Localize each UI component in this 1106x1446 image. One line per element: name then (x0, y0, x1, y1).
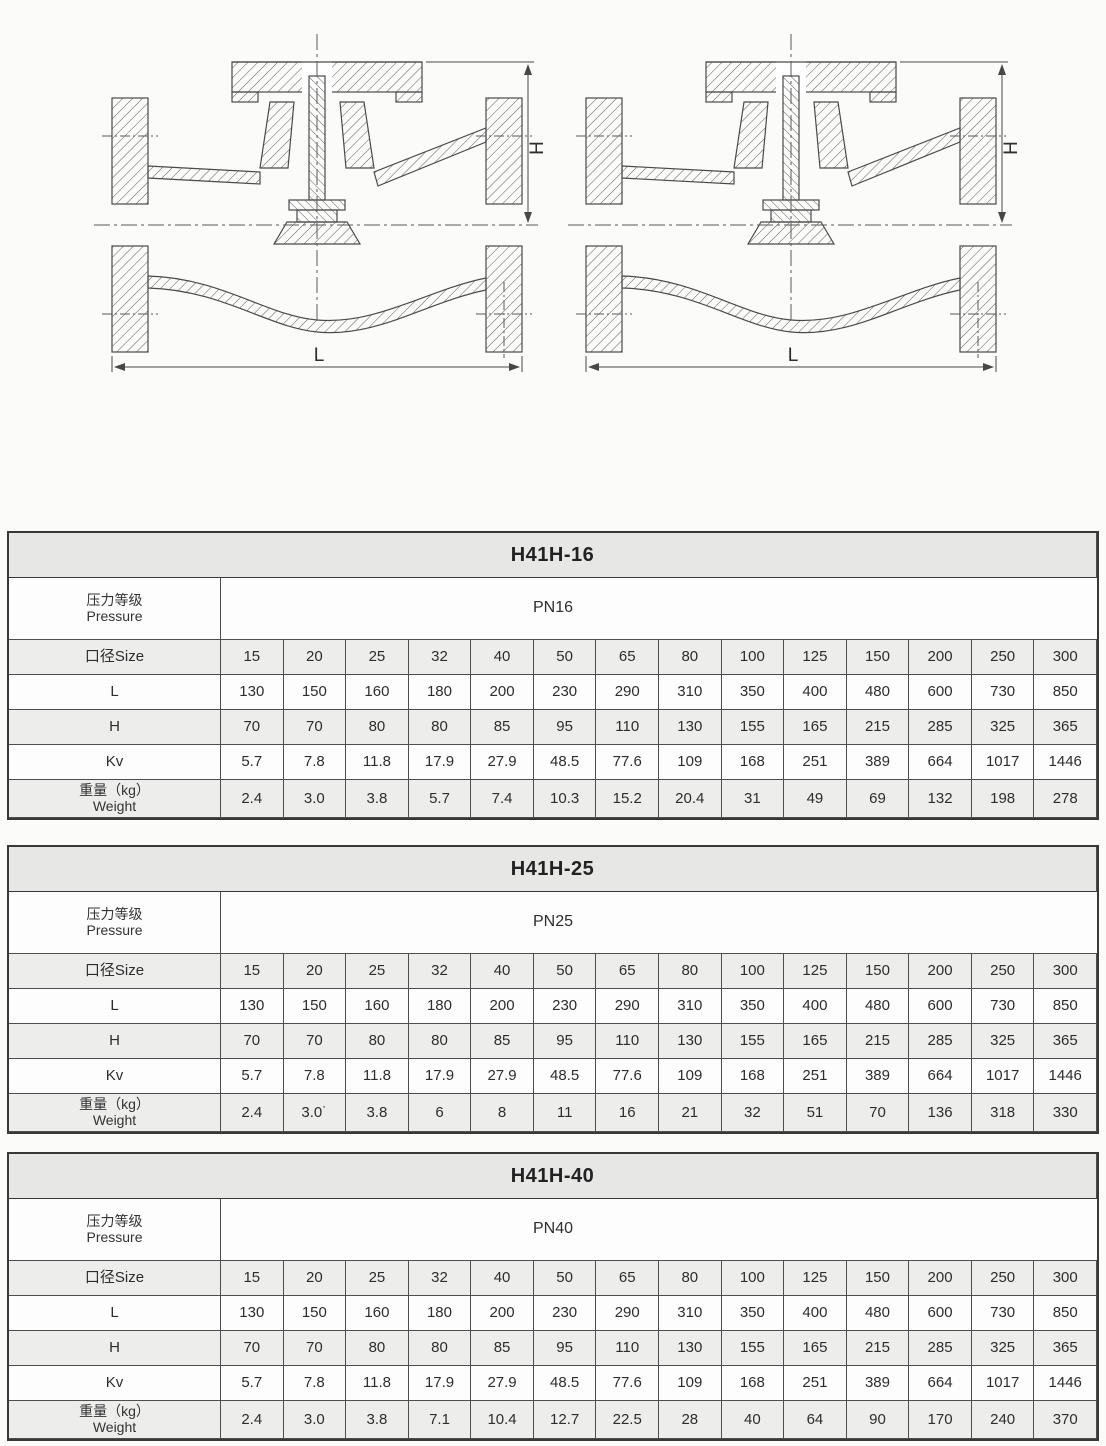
spec-cell-size: 300 (1034, 1261, 1097, 1296)
l-row-label: L (9, 989, 221, 1024)
spec-cell-kv: 251 (784, 745, 847, 780)
spec-cell-kv: 77.6 (596, 745, 659, 780)
spec-cell-l: 310 (659, 989, 722, 1024)
spec-cell-h: 325 (972, 1331, 1035, 1366)
spec-cell-size: 15 (221, 954, 284, 989)
spec-cell-l: 400 (784, 675, 847, 710)
spec-cell-kv: 5.7 (221, 745, 284, 780)
spec-cell-kv: 664 (909, 1366, 972, 1401)
spec-cell-kv: 48.5 (534, 1366, 597, 1401)
spec-cell-l: 160 (346, 675, 409, 710)
spec-cell-h: 325 (972, 710, 1035, 745)
spec-cell-size: 65 (596, 1261, 659, 1296)
spec-cell-l: 180 (409, 675, 472, 710)
spec-cell-l: 400 (784, 1296, 847, 1331)
spec-cell-size: 40 (471, 954, 534, 989)
spec-cell-kv: 17.9 (409, 1366, 472, 1401)
spec-cell-l: 730 (972, 675, 1035, 710)
l-row-label: L (9, 1296, 221, 1331)
weight-label-en: Weight (93, 799, 136, 814)
spec-cell-h: 215 (847, 1331, 910, 1366)
weight-label-en: Weight (93, 1113, 136, 1128)
spec-cell-kv: 109 (659, 1059, 722, 1094)
pressure-label-zh: 压力等级 (87, 907, 143, 922)
spec-cell-l: 850 (1034, 675, 1097, 710)
pressure-label-zh: 压力等级 (87, 593, 143, 608)
spec-cell-kv: 1446 (1034, 1366, 1097, 1401)
spec-cell-kv: 251 (784, 1059, 847, 1094)
spec-cell-l: 230 (534, 989, 597, 1024)
kv-row-label: Kv (9, 745, 221, 780)
spec-cell-l: 180 (409, 989, 472, 1024)
pressure-value: PN16 (221, 578, 1097, 640)
spec-cell-weight: 22.5 (596, 1401, 659, 1439)
spec-cell-weight: 49 (784, 780, 847, 818)
table-title: H41H-16 (9, 533, 1097, 578)
spec-cell-weight: 370 (1034, 1401, 1097, 1439)
spec-cell-size: 200 (909, 954, 972, 989)
spec-cell-kv: 48.5 (534, 745, 597, 780)
spec-cell-size: 50 (534, 640, 597, 675)
spec-cell-weight: 3.8 (346, 1094, 409, 1132)
spec-cell-h: 165 (784, 710, 847, 745)
spec-cell-size: 32 (409, 954, 472, 989)
spec-cell-weight: 31 (722, 780, 785, 818)
spec-cell-weight: 8 (471, 1094, 534, 1132)
spec-cell-h: 215 (847, 710, 910, 745)
h-row-label: H (9, 1331, 221, 1366)
pressure-label-zh: 压力等级 (87, 1214, 143, 1229)
spec-cell-h: 70 (221, 710, 284, 745)
spec-cell-h: 85 (471, 710, 534, 745)
spec-cell-kv: 11.8 (346, 1059, 409, 1094)
spec-cell-size: 25 (346, 1261, 409, 1296)
spec-cell-weight: 3.0 (284, 1401, 347, 1439)
spec-cell-weight: 3.0˙ (284, 1094, 347, 1132)
spec-cell-h: 70 (221, 1331, 284, 1366)
spec-cell-l: 850 (1034, 989, 1097, 1024)
pressure-value: PN40 (221, 1199, 1097, 1261)
spec-cell-weight: 5.7 (409, 780, 472, 818)
spec-cell-size: 250 (972, 954, 1035, 989)
spec-cell-size: 250 (972, 1261, 1035, 1296)
spec-cell-size: 15 (221, 640, 284, 675)
spec-cell-l: 290 (596, 1296, 659, 1331)
size-row-label: 口径Size (9, 640, 221, 675)
spec-cell-l: 350 (722, 1296, 785, 1331)
spec-cell-h: 165 (784, 1331, 847, 1366)
spec-cell-size: 15 (221, 1261, 284, 1296)
spec-cell-weight: 136 (909, 1094, 972, 1132)
spec-cell-l: 150 (284, 675, 347, 710)
spec-cell-weight: 132 (909, 780, 972, 818)
spec-cell-weight: 6 (409, 1094, 472, 1132)
spec-cell-h: 95 (534, 1331, 597, 1366)
spec-cell-weight: 51 (784, 1094, 847, 1132)
spec-cell-size: 200 (909, 1261, 972, 1296)
spec-cell-size: 40 (471, 640, 534, 675)
spec-cell-l: 130 (221, 1296, 284, 1331)
spec-cell-h: 110 (596, 1024, 659, 1059)
pressure-label-en: Pressure (86, 609, 142, 624)
spec-cell-weight: 3.8 (346, 1401, 409, 1439)
spec-cell-size: 150 (847, 1261, 910, 1296)
table-title: H41H-25 (9, 847, 1097, 892)
spec-cell-kv: 17.9 (409, 1059, 472, 1094)
spec-cell-h: 285 (909, 1024, 972, 1059)
spec-cell-size: 25 (346, 640, 409, 675)
pressure-value: PN25 (221, 892, 1097, 954)
spec-cell-l: 200 (471, 675, 534, 710)
spec-cell-h: 80 (409, 710, 472, 745)
spec-cell-h: 70 (221, 1024, 284, 1059)
spec-cell-size: 300 (1034, 640, 1097, 675)
spec-cell-size: 125 (784, 640, 847, 675)
spec-cell-l: 150 (284, 1296, 347, 1331)
spec-cell-l: 180 (409, 1296, 472, 1331)
spec-cell-l: 290 (596, 989, 659, 1024)
h-row-label: H (9, 1024, 221, 1059)
spec-cell-weight: 198 (972, 780, 1035, 818)
spec-cell-weight: 330 (1034, 1094, 1097, 1132)
spec-cell-kv: 389 (847, 1059, 910, 1094)
weight-label-zh: 重量（kg） (79, 783, 150, 798)
spec-cell-h: 155 (722, 710, 785, 745)
spec-cell-h: 365 (1034, 710, 1097, 745)
spec-cell-kv: 27.9 (471, 745, 534, 780)
weight-label-zh: 重量（kg） (79, 1404, 150, 1419)
spec-cell-size: 100 (722, 640, 785, 675)
spec-cell-l: 480 (847, 675, 910, 710)
spec-cell-h: 130 (659, 1331, 722, 1366)
spec-cell-l: 160 (346, 1296, 409, 1331)
spec-cell-h: 70 (284, 1024, 347, 1059)
spec-cell-size: 150 (847, 640, 910, 675)
spec-cell-l: 480 (847, 989, 910, 1024)
weight-row-label: 重量（kg） Weight (9, 1094, 221, 1132)
spec-cell-weight: 64 (784, 1401, 847, 1439)
spec-cell-h: 70 (284, 710, 347, 745)
spec-cell-weight: 70 (847, 1094, 910, 1132)
spec-cell-weight: 7.1 (409, 1401, 472, 1439)
spec-cell-kv: 5.7 (221, 1366, 284, 1401)
spec-cell-size: 20 (284, 1261, 347, 1296)
spec-cell-size: 125 (784, 1261, 847, 1296)
spec-cell-kv: 27.9 (471, 1366, 534, 1401)
spec-cell-h: 80 (346, 1331, 409, 1366)
weight-row-label: 重量（kg） Weight (9, 1401, 221, 1439)
spec-cell-h: 95 (534, 1024, 597, 1059)
spec-cell-size: 65 (596, 954, 659, 989)
h-row-label: H (9, 710, 221, 745)
valve-cross-section-drawing-right (556, 20, 1026, 380)
spec-cell-h: 110 (596, 710, 659, 745)
spec-cell-weight: 7.4 (471, 780, 534, 818)
size-row-label: 口径Size (9, 954, 221, 989)
spec-cell-weight: 2.4 (221, 1401, 284, 1439)
spec-cell-h: 215 (847, 1024, 910, 1059)
spec-cell-size: 300 (1034, 954, 1097, 989)
spec-cell-size: 32 (409, 1261, 472, 1296)
spec-cell-kv: 7.8 (284, 1366, 347, 1401)
spec-cell-kv: 168 (722, 1366, 785, 1401)
spec-cell-h: 165 (784, 1024, 847, 1059)
kv-row-label: Kv (9, 1059, 221, 1094)
spec-cell-kv: 109 (659, 745, 722, 780)
spec-cell-h: 70 (284, 1331, 347, 1366)
spec-cell-l: 310 (659, 675, 722, 710)
spec-cell-l: 310 (659, 1296, 722, 1331)
spec-cell-kv: 17.9 (409, 745, 472, 780)
weight-row-label: 重量（kg） Weight (9, 780, 221, 818)
spec-cell-kv: 664 (909, 1059, 972, 1094)
spec-cell-weight: 21 (659, 1094, 722, 1132)
spec-cell-kv: 1017 (972, 1366, 1035, 1401)
spec-cell-size: 80 (659, 1261, 722, 1296)
spec-cell-weight: 11 (534, 1094, 597, 1132)
spec-cell-h: 365 (1034, 1024, 1097, 1059)
spec-cell-weight: 170 (909, 1401, 972, 1439)
spec-cell-l: 350 (722, 675, 785, 710)
spec-cell-kv: 389 (847, 1366, 910, 1401)
valve-cross-section-drawing-left: H L (82, 20, 552, 380)
spec-cell-size: 20 (284, 640, 347, 675)
spec-cell-size: 32 (409, 640, 472, 675)
spec-cell-kv: 11.8 (346, 1366, 409, 1401)
spec-cell-kv: 251 (784, 1366, 847, 1401)
spec-cell-weight: 15.2 (596, 780, 659, 818)
spec-cell-kv: 27.9 (471, 1059, 534, 1094)
spec-cell-size: 50 (534, 1261, 597, 1296)
spec-cell-size: 50 (534, 954, 597, 989)
spec-cell-size: 200 (909, 640, 972, 675)
spec-cell-l: 160 (346, 989, 409, 1024)
spec-cell-size: 40 (471, 1261, 534, 1296)
spec-cell-kv: 168 (722, 1059, 785, 1094)
spec-cell-kv: 7.8 (284, 1059, 347, 1094)
spec-cell-size: 25 (346, 954, 409, 989)
spec-cell-weight: 16 (596, 1094, 659, 1132)
spec-cell-l: 480 (847, 1296, 910, 1331)
spec-cell-l: 230 (534, 1296, 597, 1331)
spec-table-h41h-25: H41H-25 压力等级 Pressure PN25 口径Size 152025… (7, 845, 1099, 1134)
spec-cell-l: 350 (722, 989, 785, 1024)
spec-cell-weight: 2.4 (221, 780, 284, 818)
spec-cell-h: 85 (471, 1331, 534, 1366)
spec-cell-size: 150 (847, 954, 910, 989)
spec-cell-kv: 11.8 (346, 745, 409, 780)
spec-cell-l: 400 (784, 989, 847, 1024)
spec-cell-size: 125 (784, 954, 847, 989)
pressure-label-en: Pressure (86, 923, 142, 938)
spec-cell-h: 95 (534, 710, 597, 745)
pressure-row-label: 压力等级 Pressure (9, 1199, 221, 1261)
kv-row-label: Kv (9, 1366, 221, 1401)
spec-cell-h: 110 (596, 1331, 659, 1366)
spec-cell-l: 730 (972, 1296, 1035, 1331)
spec-cell-h: 155 (722, 1024, 785, 1059)
spec-cell-weight: 12.7 (534, 1401, 597, 1439)
pressure-row-label: 压力等级 Pressure (9, 892, 221, 954)
spec-cell-size: 100 (722, 954, 785, 989)
spec-cell-h: 285 (909, 1331, 972, 1366)
spec-cell-l: 130 (221, 989, 284, 1024)
spec-cell-size: 100 (722, 1261, 785, 1296)
spec-cell-weight: 10.4 (471, 1401, 534, 1439)
spec-cell-kv: 168 (722, 745, 785, 780)
spec-cell-kv: 1446 (1034, 1059, 1097, 1094)
spec-cell-h: 80 (346, 710, 409, 745)
spec-cell-h: 80 (409, 1331, 472, 1366)
table-title: H41H-40 (9, 1154, 1097, 1199)
spec-cell-h: 130 (659, 1024, 722, 1059)
spec-cell-weight: 90 (847, 1401, 910, 1439)
spec-cell-weight: 32 (722, 1094, 785, 1132)
spec-cell-weight: 10.3 (534, 780, 597, 818)
spec-cell-kv: 1017 (972, 745, 1035, 780)
spec-cell-h: 365 (1034, 1331, 1097, 1366)
spec-cell-size: 80 (659, 640, 722, 675)
spec-cell-weight: 20.4 (659, 780, 722, 818)
pressure-row-label: 压力等级 Pressure (9, 578, 221, 640)
catalog-page: H L H41H-16 压力等级 Pressure PN16 口径Size 15… (0, 0, 1106, 1446)
spec-cell-kv: 7.8 (284, 745, 347, 780)
spec-cell-size: 20 (284, 954, 347, 989)
spec-cell-h: 85 (471, 1024, 534, 1059)
pressure-label-en: Pressure (86, 1230, 142, 1245)
spec-cell-l: 200 (471, 1296, 534, 1331)
l-row-label: L (9, 675, 221, 710)
weight-label-en: Weight (93, 1420, 136, 1435)
spec-cell-kv: 1017 (972, 1059, 1035, 1094)
spec-cell-h: 325 (972, 1024, 1035, 1059)
spec-cell-l: 130 (221, 675, 284, 710)
spec-cell-weight: 69 (847, 780, 910, 818)
spec-cell-size: 65 (596, 640, 659, 675)
spec-cell-weight: 40 (722, 1401, 785, 1439)
spec-cell-weight: 3.0 (284, 780, 347, 818)
spec-cell-weight: 278 (1034, 780, 1097, 818)
spec-cell-h: 80 (346, 1024, 409, 1059)
spec-cell-weight: 2.4 (221, 1094, 284, 1132)
spec-cell-kv: 48.5 (534, 1059, 597, 1094)
spec-cell-h: 155 (722, 1331, 785, 1366)
spec-cell-weight: 3.8 (346, 780, 409, 818)
spec-cell-l: 850 (1034, 1296, 1097, 1331)
spec-cell-l: 230 (534, 675, 597, 710)
spec-cell-kv: 77.6 (596, 1366, 659, 1401)
spec-cell-weight: 240 (972, 1401, 1035, 1439)
spec-cell-weight: 318 (972, 1094, 1035, 1132)
spec-cell-size: 80 (659, 954, 722, 989)
spec-cell-h: 285 (909, 710, 972, 745)
spec-cell-l: 600 (909, 675, 972, 710)
spec-cell-l: 290 (596, 675, 659, 710)
spec-cell-kv: 389 (847, 745, 910, 780)
spec-cell-h: 80 (409, 1024, 472, 1059)
size-row-label: 口径Size (9, 1261, 221, 1296)
weight-label-zh: 重量（kg） (79, 1097, 150, 1112)
spec-cell-kv: 5.7 (221, 1059, 284, 1094)
spec-cell-l: 200 (471, 989, 534, 1024)
spec-cell-l: 730 (972, 989, 1035, 1024)
spec-cell-kv: 664 (909, 745, 972, 780)
spec-cell-l: 600 (909, 989, 972, 1024)
spec-cell-kv: 1446 (1034, 745, 1097, 780)
spec-cell-kv: 109 (659, 1366, 722, 1401)
spec-cell-h: 130 (659, 710, 722, 745)
spec-cell-l: 600 (909, 1296, 972, 1331)
spec-cell-l: 150 (284, 989, 347, 1024)
spec-cell-kv: 77.6 (596, 1059, 659, 1094)
spec-cell-weight: 28 (659, 1401, 722, 1439)
spec-table-h41h-40: H41H-40 压力等级 Pressure PN40 口径Size 152025… (7, 1152, 1099, 1441)
spec-cell-size: 250 (972, 640, 1035, 675)
spec-table-h41h-16: H41H-16 压力等级 Pressure PN16 口径Size 152025… (7, 531, 1099, 820)
